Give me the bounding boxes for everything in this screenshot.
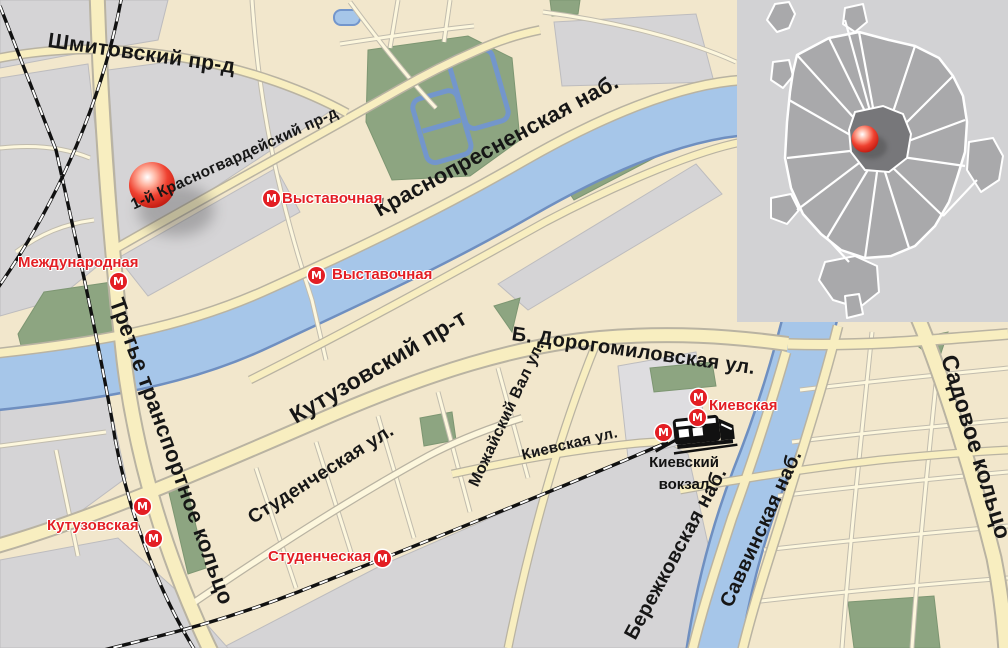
metro-icon: М: [145, 530, 162, 547]
metro-label-kievskaya: Киевская: [709, 398, 778, 413]
metro-icon: М: [655, 424, 672, 441]
inset-marker-ball: [852, 126, 879, 153]
metro-icon: М: [308, 267, 325, 284]
city-block-gray: [554, 14, 714, 86]
station-name-line1: Киевский: [636, 452, 732, 474]
inset-svg: [737, 0, 1008, 322]
metro-label-mezhdunarodnaya: Международная: [18, 255, 139, 270]
metro-label-vystavochnaya-2: Выставочная: [332, 267, 432, 282]
metro-icon: М: [689, 409, 706, 426]
map-canvas: Шмитовский пр-д 1-й Красногвардейский пр…: [0, 0, 1008, 648]
park-green: [848, 596, 940, 648]
station-name-kievsky-vokzal: Киевский вокзал: [636, 452, 732, 496]
station-name-line2: вокзал: [636, 474, 732, 496]
metro-icon: М: [690, 389, 707, 406]
metro-icon: М: [110, 273, 127, 290]
metro-icon: М: [134, 498, 151, 515]
inset-map: [737, 0, 1008, 322]
metro-icon: М: [374, 550, 391, 567]
metro-icon: М: [263, 190, 280, 207]
metro-label-studencheskaya: Студенческая: [268, 549, 371, 564]
metro-label-kutuzovskaya: Кутузовская: [47, 518, 139, 533]
metro-label-vystavochnaya: Выставочная: [282, 191, 382, 206]
